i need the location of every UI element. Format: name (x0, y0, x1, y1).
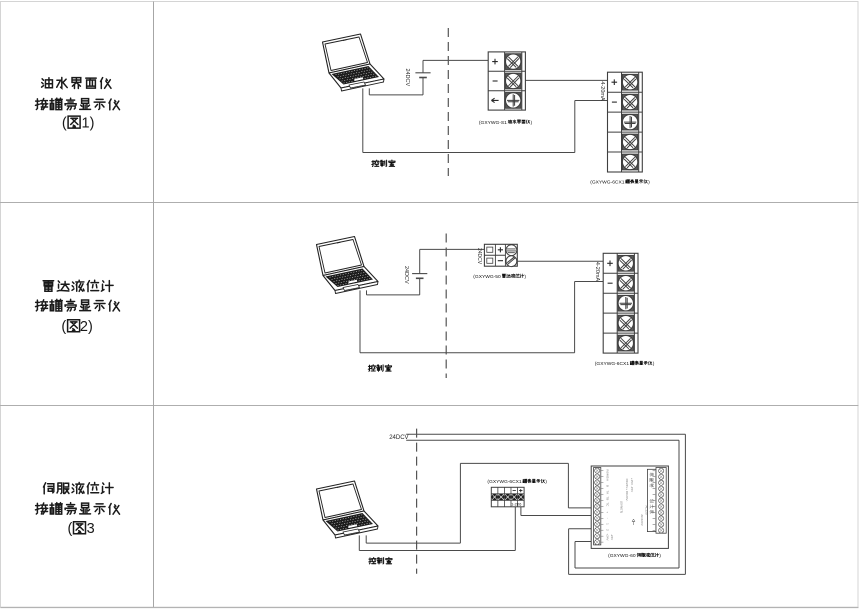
svg-text:DC24V+ DC24V-: DC24V+ DC24V- (625, 479, 629, 502)
svg-text:-: - (606, 518, 610, 519)
svg-text:(: ( (62, 116, 67, 132)
svg-text:24DCV: 24DCV (403, 266, 409, 284)
svg-text:AC220V: AC220V (640, 514, 644, 526)
svg-text:(SVNET): (SVNET) (620, 501, 624, 513)
svg-text:(GXYWG-6CX1: (GXYWG-6CX1 (590, 180, 625, 186)
svg-text:(GXYWG-60: (GXYWG-60 (608, 553, 636, 559)
svg-text:(GXYWG-50: (GXYWG-50 (473, 274, 501, 280)
svg-text:3: 3 (87, 521, 95, 537)
svg-text:A: A (606, 479, 610, 481)
svg-text:2): 2) (80, 319, 93, 335)
svg-text:(: ( (68, 521, 73, 537)
svg-text:24DCV: 24DCV (404, 68, 410, 86)
svg-text:-24V: -24V (610, 534, 614, 540)
svg-text:(GXYWG-S1: (GXYWG-S1 (479, 120, 507, 126)
svg-text:RS485: RS485 (606, 469, 610, 479)
svg-text:4-20mA: 4-20mA (599, 81, 605, 101)
svg-text:+24V: +24V (606, 533, 610, 540)
svg-text:24DCV: 24DCV (476, 248, 482, 265)
svg-text:(: ( (61, 319, 66, 335)
svg-text:+: + (606, 511, 610, 513)
svg-text:TA: TA (606, 490, 610, 494)
svg-text:TB: TB (606, 496, 610, 500)
svg-text:(GXYWG-6CX1: (GXYWG-6CX1 (595, 361, 630, 367)
svg-text:4-20mA: 4-20mA (594, 262, 600, 282)
svg-text:1): 1) (82, 116, 95, 132)
svg-text:B: B (606, 485, 610, 487)
svg-text:(GXYWG-6CX1: (GXYWG-6CX1 (487, 479, 522, 485)
svg-text:1-2K6: 1-2K6 (511, 503, 521, 507)
svg-text:+15V -15V: +15V -15V (630, 478, 634, 492)
svg-text:24DCV: 24DCV (389, 435, 408, 441)
